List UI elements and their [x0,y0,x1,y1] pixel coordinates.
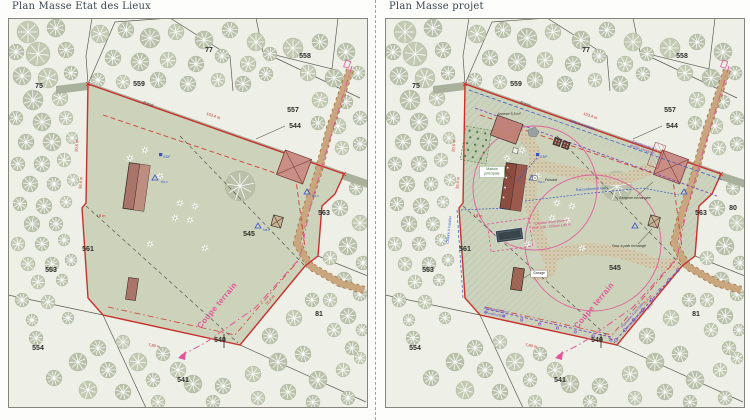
tree-symbol [433,274,445,286]
tree-symbol [215,49,229,63]
tree-symbol [456,381,474,399]
tree-symbol [731,352,743,364]
tree-symbol [517,28,537,48]
tree-symbol [356,324,368,336]
tree-symbol [131,53,149,71]
tree-symbol [168,24,184,40]
tree-symbol [672,346,688,362]
annotation-lbl: Puisard [545,178,558,182]
circle-shape [521,149,523,151]
circle-shape [534,177,536,179]
parcel-number: 540 [591,337,603,344]
tree-symbol [583,395,597,408]
tree-symbol [592,378,608,394]
tree-symbol [337,43,355,61]
tree-symbol [312,34,328,50]
tree-symbol [100,362,116,378]
parcel-number: 558 [299,53,311,60]
tree-symbol [435,42,451,58]
tree-symbol [733,324,745,336]
tree-symbol [640,47,654,61]
line-shape [647,53,653,54]
circle-shape [194,205,196,207]
tree-symbol [400,90,420,110]
tree-symbol [305,293,319,307]
parcel-number: 554 [409,345,421,352]
tree-symbol [26,42,50,66]
tree-symbol [311,116,325,130]
tree-symbol [622,366,638,382]
tree-symbol [356,256,368,270]
tree-symbol [323,251,337,265]
tree-symbol [547,362,563,378]
line-shape [397,203,403,204]
tree-symbol [424,19,442,37]
tree-symbol [280,384,296,400]
tree-symbol [352,215,368,231]
circle-shape [189,219,191,221]
annotation-blue: EDF [540,155,548,159]
tree-symbol [339,237,357,255]
tree-symbol [704,323,718,337]
tree-symbol [624,33,642,51]
line-shape [448,72,454,73]
tree-symbol [495,22,511,38]
tree-symbol [354,352,366,364]
parcel-number: 563 [695,210,707,217]
tree-symbol [41,295,55,309]
annotation-boxedg: Maisonprincipale [484,167,499,175]
parcel-number: 557 [287,107,299,114]
tree-symbol [646,353,664,371]
tree-symbol [31,275,45,289]
tree-symbol [295,346,311,362]
tree-symbol [56,274,68,286]
tree-symbol [677,65,693,81]
line-shape [500,385,501,392]
parcel-number: 554 [32,345,44,352]
tree-symbol [263,47,277,61]
tree-symbol [712,141,726,155]
tree-symbol [332,200,348,216]
tree-symbol [493,75,507,89]
annotation-alt: 752,4 [538,180,545,184]
tree-symbol [413,198,429,214]
tree-symbol [21,257,35,271]
tree-symbol [269,353,287,371]
tree-symbol [116,75,130,89]
tree-symbol [64,66,78,80]
tree-symbol [441,66,455,80]
circle-shape [174,217,176,219]
rect-shape [503,197,505,199]
tree-symbol [79,381,97,399]
annotation-dim: 18 m [473,213,483,219]
tree-symbol [508,53,526,71]
parcel-number: 563 [318,210,330,217]
tree-symbol [418,295,432,309]
tree-symbol [527,72,543,88]
tree-symbol [286,310,302,326]
parcel-number: 541 [177,377,189,384]
tree-symbol [733,256,745,270]
tree-symbol [682,293,696,307]
tree-symbol [211,73,225,87]
tree-symbol [151,395,165,408]
tree-symbol [57,153,71,167]
tree-symbol [353,137,367,151]
tree-symbol [411,156,427,172]
annotation-lbl: Bergerie inchangée [619,196,650,200]
tree-symbol [129,353,147,371]
tree-symbol [537,52,553,68]
parcel-number: 558 [676,53,688,60]
tree-symbol [424,177,438,191]
circle-shape [506,157,508,159]
tree-symbol [385,44,401,60]
tree-symbol [33,113,51,131]
tree-symbol [545,24,561,40]
tree-symbol [446,353,464,371]
annotation-alt: 749,6 [312,194,319,198]
tree-symbol [29,331,43,345]
tree-symbol [225,171,255,201]
line-shape [346,101,352,102]
panel-title-project: Plan Masse projet [389,1,484,12]
tree-symbol [729,215,745,231]
tree-symbol [718,391,732,405]
tree-symbol [588,73,602,87]
tree-symbol [639,328,655,344]
tree-symbol [709,200,725,216]
tree-symbol [240,56,256,72]
tree-symbol [46,370,62,386]
tree-symbol [689,92,705,108]
tree-symbol [730,111,744,125]
tree-symbol [714,43,732,61]
tree-symbol [47,19,65,37]
tree-symbol [58,42,74,58]
annotation-blue: EDF [163,155,171,159]
tree-symbol [312,92,328,108]
tree-symbol [420,133,438,151]
tree-symbol [140,28,160,48]
parcel-number: 553 [45,267,57,274]
parcel-number: 561 [82,246,94,253]
tree-symbol [341,391,355,405]
tree-symbol [689,34,705,50]
circle-shape [159,175,161,177]
tree-symbol [118,22,134,38]
tree-symbol [262,328,278,344]
tree-symbol [18,134,34,150]
line-shape [348,309,349,316]
tree-symbol [336,363,350,377]
tree-symbol [24,216,40,232]
tree-symbol [49,217,63,231]
tree-symbol [612,76,628,92]
line-shape [20,203,26,204]
tree-symbol [403,42,427,66]
tree-symbol [13,67,31,85]
tree-symbol [115,384,131,400]
rect-shape [505,177,507,179]
tree-symbol [8,44,24,60]
tree-symbol [468,25,486,43]
circle-shape [581,247,583,249]
tree-symbol [26,314,38,326]
rect-shape [507,167,509,169]
tree-symbol [410,113,428,131]
tree-symbol [398,257,412,271]
tree-symbol [247,33,265,51]
tree-symbol [245,366,261,382]
tree-symbol [47,177,61,191]
tree-symbol [523,373,537,387]
tree-symbol [599,22,615,38]
parcel-number: 75 [35,83,43,90]
parcel-number: 544 [666,123,678,130]
edf-marker-icon [536,153,539,156]
parcel-number: 81 [692,311,700,318]
tree-symbol [11,237,25,251]
tree-symbol [335,141,349,155]
tree-symbol [533,347,547,361]
tree-symbol [22,176,38,192]
parcel-number: 559 [133,81,145,88]
rect-shape [512,148,518,154]
tree-symbol [392,293,406,307]
tree-symbol [306,395,320,408]
hut-icon [512,148,518,154]
site-plan-sheet: Plan Masse Etat des Lieux Plan Masse pro… [0,0,750,420]
tree-symbol [493,335,507,349]
tree-symbol [36,198,52,214]
tree-symbol [395,134,411,150]
circle-shape [149,243,151,245]
tree-symbol [492,384,508,400]
map-project: 7577558559557544563561545553554541540818… [385,18,745,408]
tree-symbol [9,111,23,125]
parcel-number: 544 [289,123,301,130]
tree-symbol [439,312,451,324]
tree-symbol [388,237,402,251]
parcel-number: 545 [243,231,255,238]
tree-symbol [506,353,524,371]
tree-symbol [327,323,341,337]
tree-symbol [340,308,356,324]
tree-symbol [700,251,714,265]
tree-symbol [235,76,251,92]
tree-symbol [434,153,448,167]
tree-symbol [688,116,702,130]
tree-symbol [146,373,160,387]
tree-symbol [403,314,415,326]
parcel-number: 561 [459,246,471,253]
tree-symbol [702,69,720,87]
tree-symbol [300,65,316,81]
tree-symbol [58,234,70,246]
line-shape [413,337,419,338]
circle-shape [144,149,146,151]
parcel-number: 75 [412,83,420,90]
tree-symbol [412,237,426,251]
tree-symbol [15,293,29,307]
parcel-number: 541 [554,377,566,384]
tree-symbol [65,254,77,266]
tree-symbol [34,156,50,172]
tree-symbol [69,353,87,371]
circle-shape [526,243,528,245]
tree-symbol [628,391,642,405]
tree-symbol [423,370,439,386]
tree-symbol [408,275,422,289]
circle-shape [204,247,206,249]
tree-symbol [730,137,744,151]
tree-symbol [62,312,74,324]
tree-symbol [156,347,170,361]
parcel-number: 557 [664,107,676,114]
tree-symbol [442,254,454,266]
tree-symbol [394,21,416,43]
tree-symbol [160,52,176,68]
tree-symbol [663,310,679,326]
tree-symbol [401,216,417,232]
tree-symbol [683,395,697,408]
parcel-number: 545 [609,265,621,272]
line-shape [71,72,77,73]
tree-symbol [180,76,196,92]
tree-symbol [717,308,733,324]
map-existing: 757755855955754456356154555355454154081F… [8,18,368,408]
line-shape [725,309,726,316]
tree-symbol [700,293,714,307]
tree-symbol [215,378,231,394]
tree-symbol [716,237,734,255]
tree-symbol [353,111,367,125]
tree-symbol [386,111,400,125]
parcel-number: 553 [422,267,434,274]
line-shape [723,101,729,102]
tree-symbol [35,237,49,251]
tree-symbol [426,217,440,231]
parcel-number: 81 [315,311,323,318]
tree-symbol [436,111,450,125]
tree-symbol [388,157,402,171]
tree-symbol [325,69,343,87]
tree-symbol [713,363,727,377]
tree-symbol [528,395,542,408]
circle-shape [551,217,553,219]
tree-symbol [11,157,25,171]
tree-symbol [636,67,650,81]
parcel-number: 80 [729,205,737,212]
annotation-dim: 18 m [96,213,106,219]
panel-title-existing: Plan Masse Etat des Lieux [12,1,151,12]
line-shape [270,53,276,54]
circle-shape [556,202,558,204]
tree-symbol [59,111,73,125]
tree-symbol [17,21,39,43]
tree-symbol [309,371,327,389]
tree-symbol [399,176,415,192]
tree-symbol [592,49,606,63]
tree-symbol [23,90,43,110]
tree-symbol [617,56,633,72]
tree-symbol [482,50,498,66]
tree-symbol [467,340,483,356]
circle-shape [129,157,131,159]
tree-symbol [206,395,220,408]
rect-shape [504,187,506,189]
tree-symbol [657,384,673,400]
tree-symbol [686,371,704,389]
tree-symbol [13,197,27,211]
annotation-alt: 752,4 [161,180,168,184]
circle-shape [571,205,573,207]
parcel-number: 77 [205,47,213,54]
tree-symbol [105,50,121,66]
tree-symbol [390,197,404,211]
parcel-number: 540 [214,337,226,344]
line-shape [123,385,124,392]
annotation-lbl: Annexe 5,5 m² [496,112,521,116]
panel-divider [375,0,376,420]
parcel-number: 77 [582,47,590,54]
line-shape [36,337,42,338]
tree-symbol [259,67,273,81]
tree-symbol [43,133,61,151]
tree-symbol [222,22,238,38]
tree-symbol [251,391,265,405]
tree-symbol [170,362,186,378]
tree-symbol [188,56,204,72]
tree-symbol [116,335,130,349]
tree-symbol [477,362,493,378]
annotation-lbl: Four à pain inchangé [612,244,646,248]
tree-symbol [557,76,573,92]
parcel-number: 559 [510,81,522,88]
tree-symbol [406,331,420,345]
tree-symbol [91,25,109,43]
edf-marker-icon [159,153,162,156]
tree-symbol [150,72,166,88]
tree-symbol [437,196,449,208]
tree-symbol [565,56,581,72]
annotation-boxed: Garage [533,271,545,275]
circle-shape [179,202,181,204]
tree-symbol [390,67,408,85]
tree-symbol [323,293,337,307]
annotation-alt: 748,2 [263,228,270,232]
tree-symbol [60,196,72,208]
tree-symbol [90,340,106,356]
